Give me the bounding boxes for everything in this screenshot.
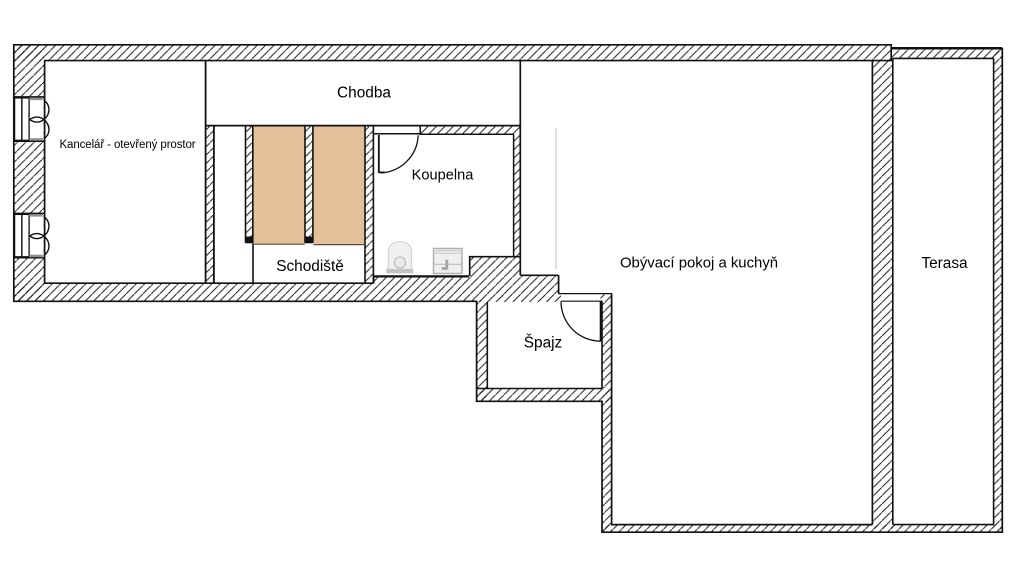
svg-text:Špajz: Špajz — [524, 335, 563, 352]
svg-text:Obývací pokoj a kuchyň: Obývací pokoj a kuchyň — [620, 256, 778, 272]
svg-text:Terasa: Terasa — [921, 255, 968, 272]
svg-text:Koupelna: Koupelna — [412, 168, 475, 184]
svg-text:Schodiště: Schodiště — [276, 258, 344, 275]
svg-text:Kancelář - otevřený prostor: Kancelář - otevřený prostor — [59, 139, 195, 151]
svg-text:Chodba: Chodba — [337, 85, 391, 102]
